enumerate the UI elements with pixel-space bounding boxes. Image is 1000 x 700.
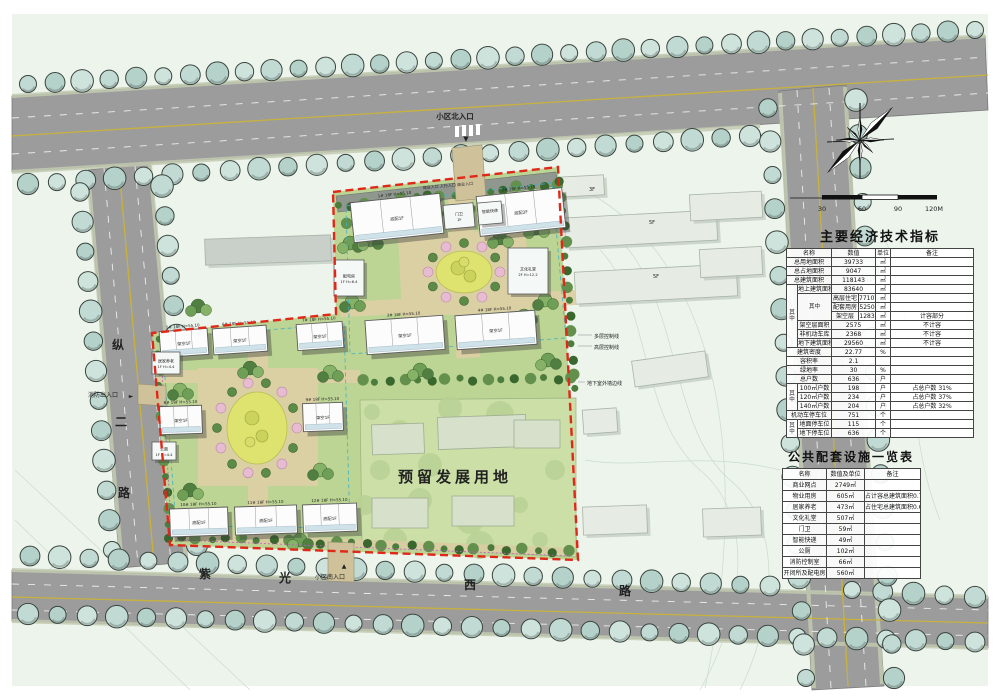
table-cell: 不计容 xyxy=(891,339,974,348)
flowering-tree xyxy=(441,292,451,302)
table-row: 智能快递49㎡ xyxy=(783,535,921,546)
street-tree xyxy=(162,267,179,284)
fire-access-driveway xyxy=(138,384,166,406)
bush xyxy=(502,546,511,555)
street-tree xyxy=(140,552,157,569)
street-tree xyxy=(80,549,98,567)
bush xyxy=(441,545,448,552)
courtyard-tree xyxy=(245,437,255,447)
street-tree xyxy=(193,164,210,181)
table-cell: 66㎡ xyxy=(827,557,865,568)
reserved-land-label: 预留发展用地 xyxy=(398,468,512,486)
street-tree xyxy=(168,552,188,572)
street-tree xyxy=(48,174,65,191)
annotation-text: 多层控制线 xyxy=(594,333,619,340)
table-cell: 总用地面积 xyxy=(787,258,832,267)
courtyard-shrub xyxy=(213,424,222,433)
street-tree xyxy=(91,421,111,441)
bush xyxy=(565,372,576,383)
table-cell: 地面停车位 xyxy=(798,420,832,429)
bush xyxy=(535,547,542,554)
street-tree xyxy=(584,570,601,587)
table-cell: ㎡ xyxy=(876,339,891,348)
street-tree xyxy=(316,57,336,77)
public-facilities-panel: 公共配套设施一览表 名称数值及单位备注商业网点2749㎡物业用房605㎡占计容总… xyxy=(782,448,920,579)
table-cell: 配套用房 xyxy=(832,303,859,312)
bush xyxy=(392,543,399,550)
street-tree xyxy=(912,24,930,42)
street-tree xyxy=(451,49,471,69)
street-tree xyxy=(883,23,906,46)
table-cell: 非机动车库 xyxy=(798,330,832,339)
table-cell: 机动车停车位 xyxy=(787,411,832,420)
table-cell xyxy=(891,429,974,438)
street-tree xyxy=(45,73,65,93)
street-tree xyxy=(712,129,730,147)
street-tree xyxy=(365,151,385,171)
table-cell: 占住宅总建筑面积0.61% xyxy=(865,502,921,513)
street-tree xyxy=(85,360,106,381)
bush xyxy=(497,376,504,383)
bush xyxy=(375,540,386,551)
facility-group: 文化礼堂2F H=12.2 xyxy=(508,248,551,297)
street-tree xyxy=(20,76,37,93)
table-cell xyxy=(891,303,974,312)
table-row: 名称数值单位备注 xyxy=(787,249,974,258)
street-tree xyxy=(595,135,616,156)
table-cell: 个 xyxy=(876,411,891,420)
flowering-tree xyxy=(495,267,505,277)
bush xyxy=(488,544,495,551)
table-row: 总用地面积39733㎡ xyxy=(787,258,974,267)
table-cell xyxy=(891,294,974,303)
street-tree xyxy=(97,481,115,499)
table-cell: 605㎡ xyxy=(827,491,865,502)
street-tree xyxy=(757,625,778,646)
table-row: 名称数值及单位备注 xyxy=(783,469,921,480)
street-tree xyxy=(506,47,524,65)
table-cell: 507㎡ xyxy=(827,513,865,524)
table-cell: 39733 xyxy=(832,258,876,267)
table-cell: 204 xyxy=(832,402,876,411)
table-cell: 地下建筑面积 xyxy=(798,339,832,348)
street-tree xyxy=(793,634,814,655)
street-tree xyxy=(156,207,174,225)
street-tree xyxy=(766,231,789,254)
street-tree xyxy=(844,582,861,599)
header-cell: 数值及单位 xyxy=(827,469,865,480)
street-tree xyxy=(134,167,152,185)
reserved-tree xyxy=(364,404,380,420)
table-cell xyxy=(891,357,974,366)
street-tree xyxy=(376,561,394,579)
north-entrance-arrow-icon: ▼ xyxy=(463,135,469,143)
bush xyxy=(563,545,574,556)
table-cell: 占计容总建筑面积0.72% xyxy=(865,491,921,502)
courtyard-shrub xyxy=(289,443,298,452)
table-cell: 架空层面积 xyxy=(798,321,832,330)
street-tree xyxy=(798,670,815,687)
courtyard-shrub xyxy=(261,468,270,477)
street-tree xyxy=(99,510,120,531)
street-tree xyxy=(612,39,635,62)
bush xyxy=(455,545,464,554)
street-tree xyxy=(857,26,877,46)
table-cell: 1283 xyxy=(859,312,876,321)
street-tree xyxy=(845,627,868,650)
table-cell: 77107 xyxy=(859,294,876,303)
courtyard-tree xyxy=(256,430,268,442)
street-tree xyxy=(157,235,178,256)
table-cell xyxy=(865,557,921,568)
bush xyxy=(525,373,536,384)
street-tree xyxy=(433,617,451,635)
table-cell: 地下停车位 xyxy=(798,429,832,438)
existing-building xyxy=(583,505,648,535)
table-cell xyxy=(891,420,974,429)
courtyard-shrub xyxy=(428,253,437,262)
table-row: 地下建筑面积29560㎡不计容 xyxy=(787,339,974,348)
street-tree xyxy=(279,158,297,176)
table-cell: 总建筑面积 xyxy=(787,276,832,285)
street-tree xyxy=(549,618,572,641)
south-entrance-label: 小区南入口 xyxy=(315,573,345,581)
table-cell: 100㎡户数 xyxy=(798,384,832,393)
table-cell xyxy=(891,267,974,276)
site-plan-page: 3F 5F 5F xyxy=(0,0,1000,700)
bush xyxy=(554,375,563,384)
courtyard-shrub xyxy=(289,404,298,413)
street-tree xyxy=(93,449,116,472)
table-cell: 消防控制室 xyxy=(783,557,827,568)
street-tree xyxy=(477,46,500,69)
table-cell: ㎡ xyxy=(876,303,891,312)
table-cell: 商业网点 xyxy=(783,480,827,491)
street-tree xyxy=(722,34,742,54)
table-cell: 建筑密度 xyxy=(787,348,832,357)
scale-tick: 60 xyxy=(858,205,866,213)
street-tree xyxy=(935,586,953,604)
street-tree xyxy=(155,68,172,85)
table-cell xyxy=(891,276,974,285)
site-tree xyxy=(323,469,334,480)
table-cell xyxy=(891,285,974,294)
table-cell: 物业用房 xyxy=(783,491,827,502)
table-row: 公厕102㎡ xyxy=(783,546,921,557)
existing-building xyxy=(699,246,762,277)
street-tree xyxy=(776,32,794,50)
street-tree xyxy=(49,606,66,623)
table-row: 文化礼堂507㎡ xyxy=(783,513,921,524)
facility-name: 门卫 xyxy=(455,210,463,217)
flowering-tree xyxy=(423,267,433,277)
table-cell: 文化礼堂 xyxy=(783,513,827,524)
street-tree xyxy=(105,605,128,628)
site-tree xyxy=(423,369,434,380)
street-tree xyxy=(641,39,659,57)
table-cell: 9047 xyxy=(832,267,876,276)
table-cell: 个 xyxy=(876,420,891,429)
flowering-tree xyxy=(216,403,226,413)
street-tree xyxy=(729,626,747,644)
site-tree xyxy=(408,370,419,381)
street-tree xyxy=(902,582,925,605)
table-cell xyxy=(865,568,921,579)
street-tree xyxy=(126,67,147,88)
site-tree xyxy=(238,368,249,379)
table-cell xyxy=(865,546,921,557)
table-cell: 其中 xyxy=(787,420,798,438)
north-driveway xyxy=(452,145,486,201)
street-tree xyxy=(71,183,89,201)
facility-tag: 1F H=4.4 xyxy=(158,365,176,369)
bush xyxy=(371,379,378,386)
scale-tick: 30 xyxy=(818,205,826,213)
table-cell: 118143 xyxy=(832,276,876,285)
bush xyxy=(548,548,557,557)
street-tree xyxy=(883,667,904,688)
scale-tick: 120M xyxy=(925,205,943,213)
bottom-road-name-char: 路 xyxy=(619,583,632,598)
table-cell: 49㎡ xyxy=(827,535,865,546)
existing-building-label: 5F xyxy=(649,220,655,226)
bush xyxy=(457,375,464,382)
table-cell: 83640 xyxy=(832,285,876,294)
street-tree xyxy=(747,31,770,54)
street-tree xyxy=(792,602,810,620)
building-glazing xyxy=(305,423,341,429)
street-tree xyxy=(764,167,781,184)
flowering-tree xyxy=(243,468,253,478)
table-cell: 59㎡ xyxy=(827,524,865,535)
table-cell: 公厕 xyxy=(783,546,827,557)
bottom-road-name-char: 西 xyxy=(464,578,476,592)
street-tree xyxy=(137,608,155,626)
building-height: 18F H=55.10 xyxy=(257,499,284,505)
annotation-text: 高层控制线 xyxy=(594,344,619,351)
courtyard-shrub xyxy=(460,239,469,248)
facility-tag: 2F H=12.2 xyxy=(518,273,537,277)
street-tree xyxy=(561,45,578,62)
street-tree xyxy=(151,175,174,198)
street-tree xyxy=(396,52,417,73)
table-cell xyxy=(865,513,921,524)
street-tree xyxy=(392,148,415,171)
street-tree xyxy=(967,22,984,39)
table-row: 消防控制室66㎡ xyxy=(783,557,921,568)
table-cell: 636 xyxy=(832,429,876,438)
left-road-name-char: 纵 xyxy=(112,337,124,352)
street-tree xyxy=(253,610,276,633)
table-row: 140㎡户数204户占总户数 32% xyxy=(787,402,974,411)
flowering-tree xyxy=(277,387,287,397)
street-tree xyxy=(228,555,246,573)
table-cell: 地上建筑面积 xyxy=(798,285,832,294)
table-row: 建筑密度22.77% xyxy=(787,348,974,357)
street-tree xyxy=(225,610,245,630)
street-tree xyxy=(937,633,954,650)
site-tree xyxy=(355,301,366,312)
site-tree xyxy=(193,489,204,500)
table-cell: 户 xyxy=(876,402,891,411)
fire-access-label: 消防出入口 xyxy=(88,391,118,399)
table-cell: 473㎡ xyxy=(827,502,865,513)
street-tree xyxy=(802,29,823,50)
street-tree xyxy=(164,296,184,316)
street-tree xyxy=(436,564,453,581)
street-tree xyxy=(482,145,499,162)
table-cell: 户 xyxy=(876,384,891,393)
street-tree xyxy=(696,37,713,54)
street-tree xyxy=(653,132,673,152)
table-cell: 5250 xyxy=(859,303,876,312)
site-tree xyxy=(548,299,559,310)
table-row: 总户数636户 xyxy=(787,375,974,384)
street-tree xyxy=(371,55,389,73)
street-tree xyxy=(103,167,126,190)
street-tree xyxy=(586,42,606,62)
street-tree xyxy=(492,564,515,587)
street-tree xyxy=(108,549,129,570)
street-tree xyxy=(739,125,760,146)
facility-group: 配电房1F H=6.4 xyxy=(334,260,367,299)
facility-group: 居家养老1F H=4.4 xyxy=(152,352,183,377)
flowering-tree xyxy=(477,242,487,252)
building-height: 18F H=55.10 xyxy=(190,501,217,507)
street-tree xyxy=(78,272,98,292)
street-tree xyxy=(77,243,94,260)
table-cell: 2749㎡ xyxy=(827,480,865,491)
street-tree xyxy=(20,546,40,566)
street-tree xyxy=(256,555,277,576)
table-cell: 居家养老 xyxy=(783,502,827,513)
table-cell: 2.1 xyxy=(832,357,876,366)
bush xyxy=(439,373,450,384)
bush xyxy=(571,385,578,392)
courtyard-shrub xyxy=(228,388,237,397)
street-tree xyxy=(337,154,354,171)
table-row: 其中地上建筑面积83640㎡ xyxy=(787,285,974,294)
bush xyxy=(483,374,494,385)
bush xyxy=(516,543,527,554)
street-tree xyxy=(306,154,327,175)
flowering-tree xyxy=(292,423,302,433)
street-tree xyxy=(79,300,102,323)
table-cell: ㎡ xyxy=(876,312,891,321)
courtyard-shrub xyxy=(460,297,469,306)
bush xyxy=(467,543,478,554)
street-tree xyxy=(17,603,38,624)
flowering-tree xyxy=(277,459,287,469)
street-tree xyxy=(290,60,307,77)
table-cell: 智能快递 xyxy=(783,535,827,546)
table-cell: 总占地面积 xyxy=(787,267,832,276)
table-cell xyxy=(865,524,921,535)
economic-indicators-panel: 主要经济技术指标 名称数值单位备注总用地面积39733㎡总占地面积9047㎡总建… xyxy=(786,226,974,438)
site-tree xyxy=(308,470,319,481)
table-cell: 140㎡户数 xyxy=(798,402,832,411)
site-tree xyxy=(186,306,197,317)
street-tree xyxy=(77,606,97,626)
table-row: 容积率2.1 xyxy=(787,357,974,366)
site-tree xyxy=(201,305,212,316)
table-row: 架空层面积2575㎡不计容 xyxy=(787,321,974,330)
street-tree xyxy=(765,199,785,219)
site-tree xyxy=(253,367,264,378)
street-tree xyxy=(180,65,200,85)
street-tree xyxy=(669,623,689,643)
table-row: 其中100㎡户数198户占总户数 31% xyxy=(787,384,974,393)
street-tree xyxy=(581,621,599,639)
street-tree xyxy=(261,60,282,81)
bush xyxy=(386,377,395,386)
courtyard-shrub xyxy=(491,282,500,291)
flowering-tree xyxy=(243,378,253,388)
street-tree xyxy=(285,613,303,631)
table-cell xyxy=(865,535,921,546)
facility-group: 公厕1F H=4.4 xyxy=(152,442,179,463)
annotation-text: 地下室外墙边线 xyxy=(587,380,622,387)
street-tree xyxy=(313,612,334,633)
courtyard-tree xyxy=(245,411,259,425)
street-tree xyxy=(165,608,186,629)
table-cell: 2575 xyxy=(832,321,876,330)
site-tree xyxy=(183,389,194,400)
facility-tag: 1F xyxy=(457,218,462,222)
street-tree xyxy=(568,138,586,156)
street-tree xyxy=(531,44,552,65)
bush xyxy=(335,202,342,209)
table-cell: 636 xyxy=(832,375,876,384)
header-cell: 单位 xyxy=(876,249,891,258)
table-cell: 计容部分 xyxy=(891,312,974,321)
courtyard-shrub xyxy=(428,282,437,291)
reserved-tree xyxy=(438,396,462,420)
building-height: 18F H=55.10 xyxy=(313,396,340,402)
table-cell: % xyxy=(876,348,891,357)
table-cell: ㎡ xyxy=(876,258,891,267)
table-cell: 容积率 xyxy=(787,357,832,366)
street-tree xyxy=(759,99,777,117)
bush xyxy=(566,311,575,320)
building-height: 18F H=55.10 xyxy=(321,497,348,503)
street-tree xyxy=(72,211,93,232)
west-courtyard-lawn xyxy=(227,392,287,464)
street-tree xyxy=(423,148,441,166)
table-cell xyxy=(876,357,891,366)
street-tree xyxy=(509,141,529,161)
facility-group: 门卫1F xyxy=(443,202,478,232)
bush xyxy=(569,356,578,365)
courtyard-tree xyxy=(459,257,469,267)
street-tree xyxy=(732,576,749,593)
street-tree xyxy=(100,70,118,88)
site-tree xyxy=(333,371,344,382)
facility-group: 智能快递 xyxy=(477,201,506,228)
bush xyxy=(510,374,519,383)
table-cell: ㎡ xyxy=(876,285,891,294)
street-tree xyxy=(965,632,985,652)
table-row: 居家养老473㎡占住宅总建筑面积0.61% xyxy=(783,502,921,513)
existing-building xyxy=(205,235,332,265)
street-tree xyxy=(197,611,214,628)
table-row: 绿地率30% xyxy=(787,366,974,375)
table-cell: 开闭所及配电房 xyxy=(783,568,827,579)
street-tree xyxy=(905,630,926,651)
table-cell xyxy=(865,480,921,491)
table-row: 商业网点2749㎡ xyxy=(783,480,921,491)
street-tree xyxy=(235,62,253,80)
